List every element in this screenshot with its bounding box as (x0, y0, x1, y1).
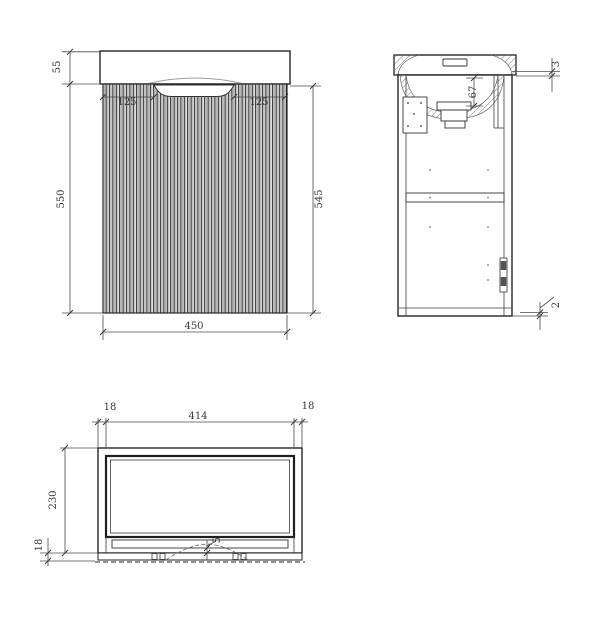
front-dim-height-left-value: 550 (56, 189, 67, 208)
bottom-front-strip (98, 553, 302, 560)
front-dim-counter-height: 55 550 (52, 49, 103, 316)
bottom-dim-front-panel: 18 (34, 538, 95, 566)
bottom-dim-right-panel-value: 18 (302, 401, 315, 412)
drawing-canvas: 125 125 55 550 545 (0, 0, 600, 623)
bottom-rail (112, 540, 288, 548)
front-countertop (100, 51, 290, 84)
side-dim-top-overhang-value: 3 (551, 61, 562, 67)
front-fluted-panel (103, 84, 287, 313)
side-shelf (406, 193, 504, 202)
front-dim-width: 450 (100, 315, 290, 340)
side-overflow-slot (443, 59, 467, 66)
front-dim-right-flute-value: 125 (249, 97, 268, 108)
bottom-dim-inner-width-value: 414 (188, 411, 207, 422)
side-dim-basin-depth-value: 67 (468, 86, 479, 99)
side-hinge-bottom (501, 277, 507, 286)
side-hinges (500, 258, 507, 292)
side-dim-top-overhang: 3 (512, 58, 562, 92)
front-dim-height-right: 545 (287, 83, 325, 316)
side-dim-bottom-gap: 2 (512, 297, 562, 330)
bottom-dim-left-panel-value: 18 (104, 402, 117, 413)
bottom-dim-gap-value: 5 (212, 537, 223, 543)
side-mounting-bracket (403, 97, 427, 133)
side-dim-bottom-gap-value: 2 (551, 302, 562, 308)
side-view: 3 67 2 (394, 55, 562, 330)
front-dim-width-value: 450 (184, 321, 203, 332)
bottom-dim-depth: 230 (40, 445, 98, 556)
bottom-view: 18 414 18 230 18 5 (34, 401, 314, 566)
bottom-dim-front-panel-value: 18 (34, 539, 45, 552)
bottom-door-panel (106, 456, 294, 537)
front-dim-counter-height-value: 55 (52, 61, 63, 74)
side-hinge-top (501, 261, 507, 270)
bottom-dim-top-row: 18 414 18 (92, 401, 314, 448)
front-handle-recess (154, 85, 234, 97)
front-dim-left-flute-value: 125 (117, 97, 136, 108)
bottom-dim-depth-value: 230 (48, 490, 59, 509)
front-view: 125 125 55 550 545 (52, 49, 325, 340)
front-dim-height-right-value: 545 (314, 189, 325, 208)
technical-drawing-page: 125 125 55 550 545 (0, 0, 600, 623)
